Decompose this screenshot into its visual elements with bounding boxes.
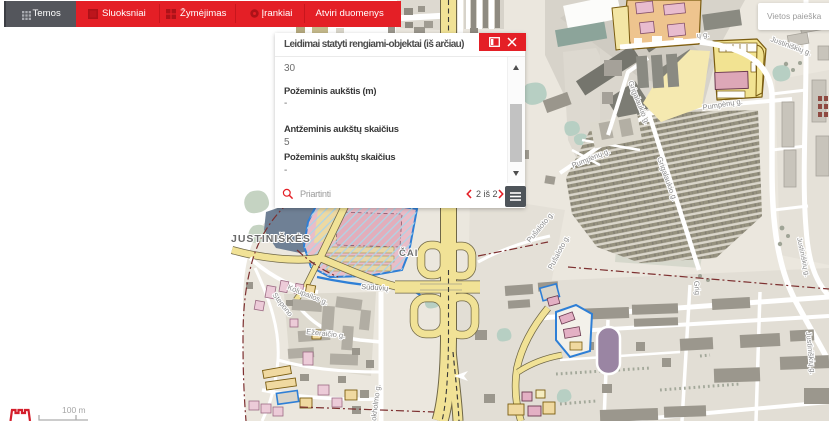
svg-text:Grig: Grig xyxy=(692,280,702,295)
svg-text:JUSTINIŠKĖS: JUSTINIŠKĖS xyxy=(231,232,311,245)
svg-text:Sūduvių: Sūduvių xyxy=(361,282,389,293)
svg-text:ČAI: ČAI xyxy=(399,247,418,259)
svg-text:ų g.: ų g. xyxy=(696,30,709,40)
